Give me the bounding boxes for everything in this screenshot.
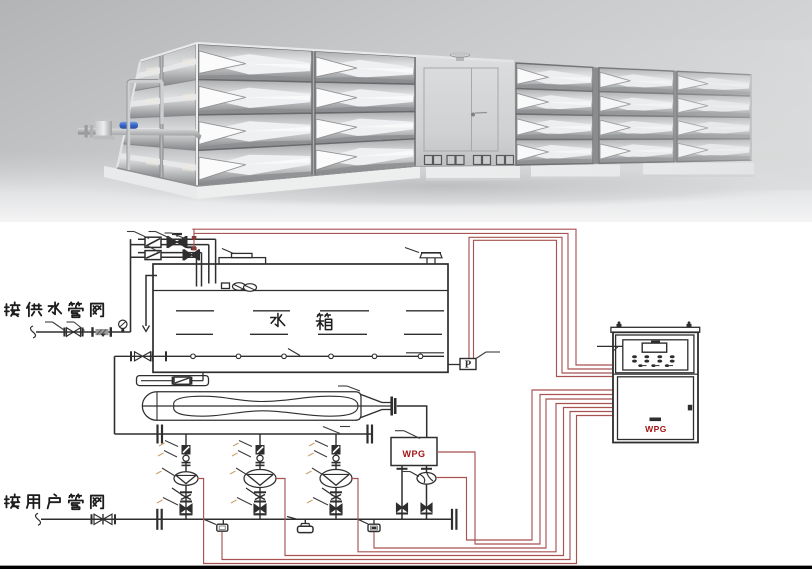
svg-text:WPG: WPG: [645, 424, 667, 434]
svg-text:WPG: WPG: [403, 449, 426, 459]
svg-text:P: P: [465, 360, 472, 371]
